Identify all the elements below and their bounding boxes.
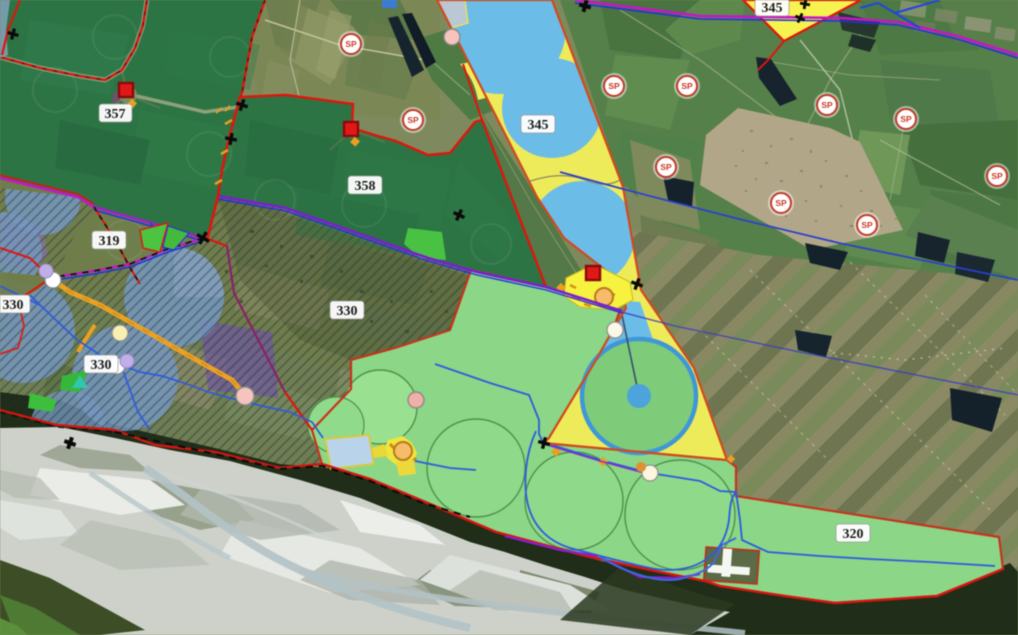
svg-text:357: 357: [105, 107, 126, 122]
svg-text:SP: SP: [900, 114, 912, 124]
svg-text:345: 345: [528, 118, 549, 133]
svg-text:330: 330: [91, 358, 112, 373]
svg-text:330: 330: [337, 304, 358, 319]
svg-text:SP: SP: [345, 39, 357, 49]
svg-text:330: 330: [3, 298, 24, 313]
svg-text:345: 345: [762, 1, 783, 16]
svg-text:SP: SP: [991, 171, 1003, 181]
svg-text:SP: SP: [660, 162, 672, 172]
svg-text:319: 319: [99, 234, 120, 249]
svg-text:SP: SP: [775, 198, 787, 208]
svg-text:SP: SP: [407, 115, 419, 125]
svg-text:SP: SP: [608, 81, 620, 91]
svg-text:SP: SP: [821, 100, 833, 110]
svg-text:SP: SP: [681, 81, 693, 91]
svg-text:358: 358: [355, 179, 376, 194]
svg-text:SP: SP: [861, 220, 873, 230]
svg-text:320: 320: [843, 527, 864, 542]
